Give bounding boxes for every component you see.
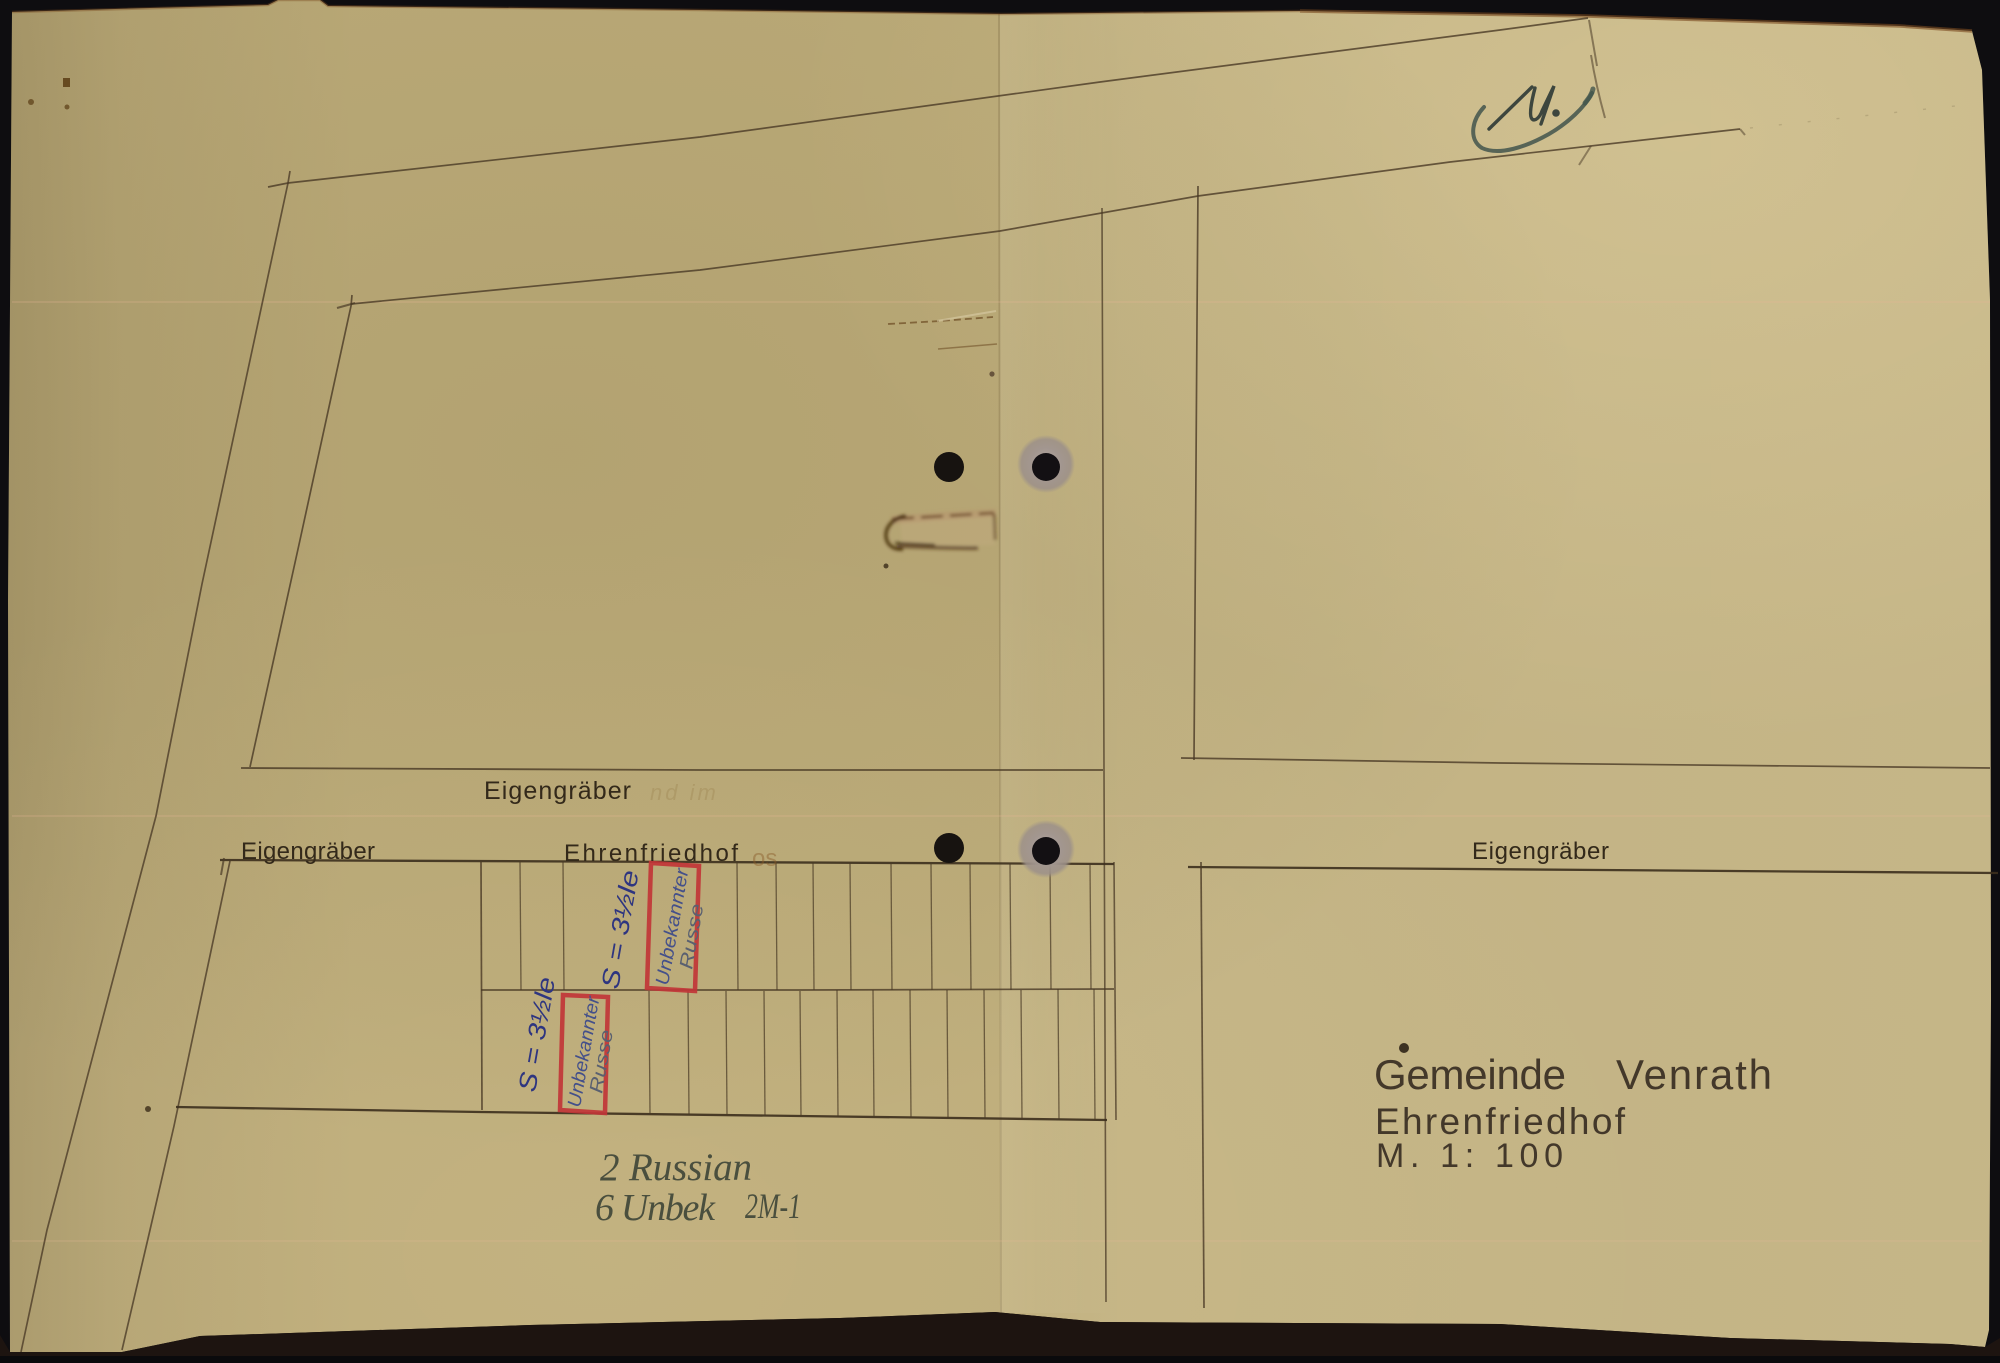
svg-text:Eigengräber: Eigengräber	[484, 777, 631, 805]
svg-text:6 Unbek: 6 Unbek	[595, 1187, 716, 1229]
svg-text:2 Russian: 2 Russian	[600, 1146, 752, 1189]
svg-text:Gemeinde: Gemeinde	[1374, 1051, 1566, 1098]
svg-text:Eigengräber: Eigengräber	[241, 838, 375, 865]
svg-text:M. 1: 100: M. 1: 100	[1376, 1137, 1563, 1175]
svg-text:Eigengräber: Eigengräber	[1472, 838, 1609, 865]
svg-text:2M-1: 2M-1	[745, 1186, 801, 1226]
svg-text:os: os	[752, 845, 777, 872]
svg-text:Venrath: Venrath	[1616, 1051, 1772, 1098]
svg-text:nd im: nd im	[650, 780, 719, 805]
svg-text:Ehrenfriedhof: Ehrenfriedhof	[564, 840, 738, 867]
svg-text:Ehrenfriedhof: Ehrenfriedhof	[1375, 1101, 1626, 1142]
